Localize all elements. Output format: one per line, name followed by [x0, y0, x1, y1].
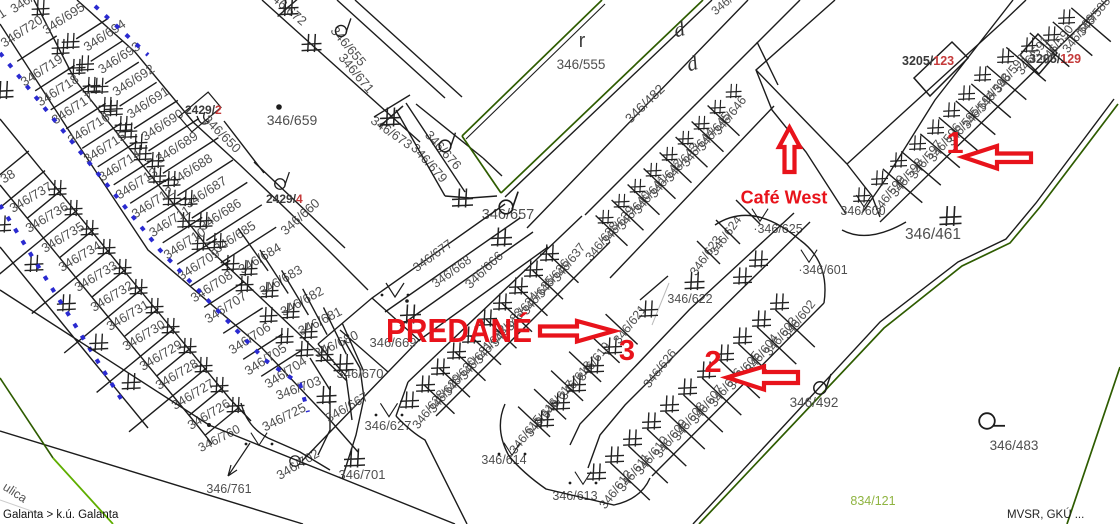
- svg-text:834/121: 834/121: [850, 494, 895, 508]
- svg-text:2: 2: [704, 344, 721, 379]
- svg-text:MVSR, GKÚ ...: MVSR, GKÚ ...: [1007, 508, 1084, 521]
- svg-text:PREDANÉ: PREDANÉ: [386, 312, 532, 349]
- svg-text:3205/123: 3205/123: [902, 54, 954, 68]
- svg-text:346/555: 346/555: [557, 57, 606, 72]
- svg-text:Café West: Café West: [741, 188, 828, 208]
- svg-text:346/659: 346/659: [267, 112, 318, 128]
- svg-text:346/483: 346/483: [990, 438, 1039, 453]
- svg-text:r: r: [579, 30, 586, 52]
- svg-text:2429/4: 2429/4: [266, 192, 303, 206]
- svg-text:2429/2: 2429/2: [185, 103, 222, 117]
- svg-text:346/627: 346/627: [365, 418, 412, 433]
- svg-text:346/614: 346/614: [481, 453, 526, 467]
- svg-text:1: 1: [946, 125, 963, 160]
- svg-text:Galanta > k.ú. Galanta: Galanta > k.ú. Galanta: [3, 509, 119, 521]
- svg-text:346/761: 346/761: [206, 482, 251, 496]
- svg-text:3: 3: [619, 335, 635, 367]
- svg-text:·346/601: ·346/601: [798, 263, 847, 277]
- svg-text:346/492: 346/492: [790, 395, 839, 410]
- svg-text:346/461: 346/461: [905, 226, 961, 243]
